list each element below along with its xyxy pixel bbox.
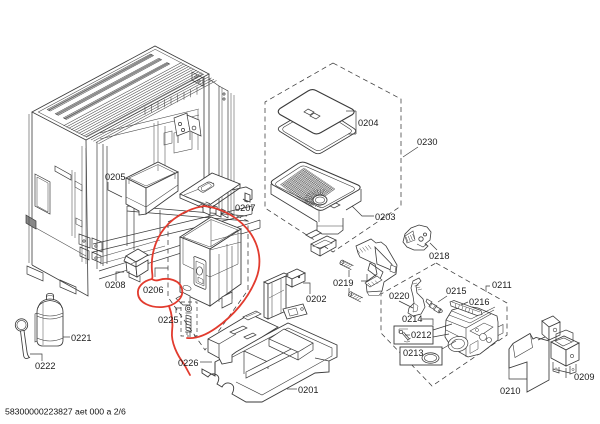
svg-text:0220: 0220 <box>389 291 409 301</box>
svg-text:0207: 0207 <box>235 203 255 213</box>
svg-text:0222: 0222 <box>35 361 55 371</box>
svg-text:0226: 0226 <box>178 358 198 368</box>
svg-text:0204: 0204 <box>358 118 378 128</box>
svg-text:0203: 0203 <box>375 212 395 222</box>
svg-text:0230: 0230 <box>417 137 437 147</box>
svg-text:0213: 0213 <box>403 348 423 358</box>
svg-text:0218: 0218 <box>429 251 449 261</box>
svg-text:0214: 0214 <box>402 314 422 324</box>
svg-text:0208: 0208 <box>105 280 125 290</box>
svg-text:0221: 0221 <box>71 333 91 343</box>
svg-text:0209: 0209 <box>574 372 594 382</box>
svg-text:0225: 0225 <box>158 315 178 325</box>
svg-text:0202: 0202 <box>306 294 326 304</box>
svg-text:0216: 0216 <box>469 297 489 307</box>
svg-text:0206: 0206 <box>143 285 163 295</box>
svg-text:0205: 0205 <box>105 172 125 182</box>
svg-text:0212: 0212 <box>411 330 431 340</box>
svg-text:0210: 0210 <box>500 386 520 396</box>
svg-text:0219: 0219 <box>333 278 353 288</box>
svg-text:0201: 0201 <box>298 385 318 395</box>
svg-text:0215: 0215 <box>446 286 466 296</box>
svg-text:58300000223827 aet 000 a 2/6: 58300000223827 aet 000 a 2/6 <box>5 407 126 417</box>
svg-text:0211: 0211 <box>492 280 512 290</box>
